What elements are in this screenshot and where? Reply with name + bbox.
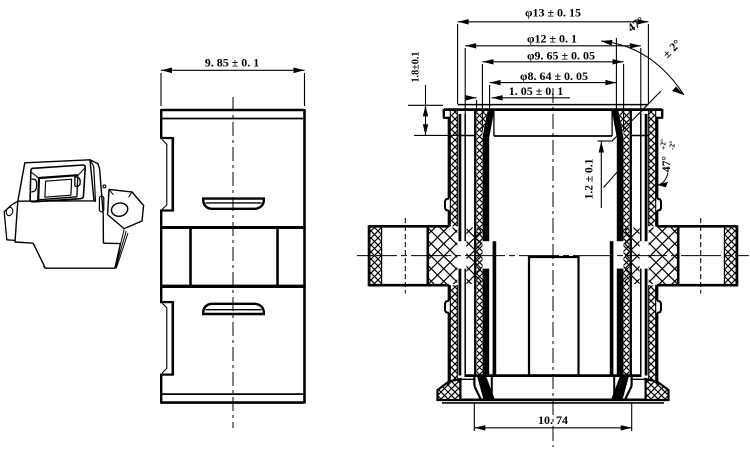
svg-text:9. 85 ± 0. 1: 9. 85 ± 0. 1 (205, 56, 260, 70)
svg-text:10. 74: 10. 74 (538, 413, 568, 427)
svg-text:-2°: -2° (668, 141, 677, 150)
svg-text:+2°: +2° (659, 139, 668, 150)
svg-text:± 2°: ± 2° (660, 36, 684, 60)
svg-text:1.2 ± 0.1: 1.2 ± 0.1 (584, 158, 596, 199)
svg-text:1.8±0.1: 1.8±0.1 (411, 51, 422, 82)
svg-text:1. 05 ± 0. 1: 1. 05 ± 0. 1 (509, 84, 564, 98)
svg-text:φ9. 65 ± 0. 05: φ9. 65 ± 0. 05 (527, 49, 595, 63)
svg-text:47°: 47° (625, 14, 647, 35)
svg-text:φ12 ± 0. 1: φ12 ± 0. 1 (527, 32, 577, 46)
svg-text:47°: 47° (661, 156, 673, 173)
svg-text:φ8. 64 ± 0. 05: φ8. 64 ± 0. 05 (520, 69, 588, 83)
svg-text:φ13 ± 0. 15: φ13 ± 0. 15 (525, 6, 581, 20)
